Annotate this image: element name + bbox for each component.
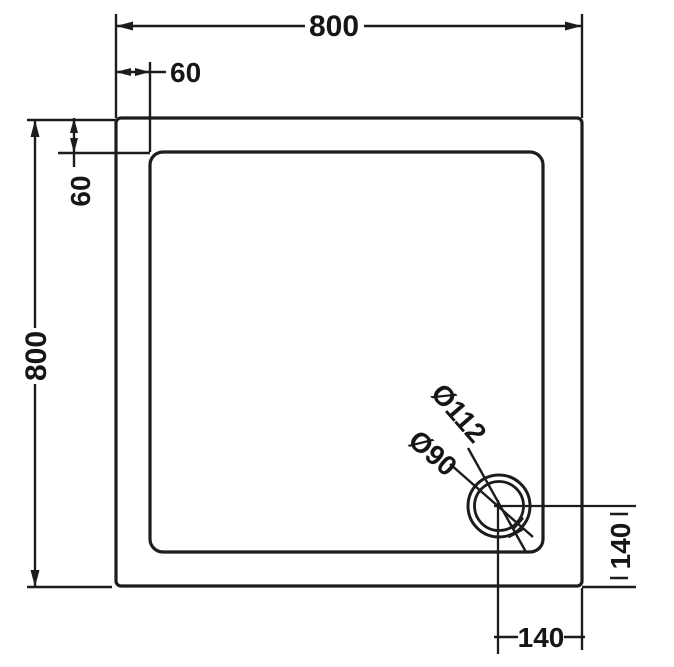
- dim-label-left-height: 800: [20, 331, 53, 381]
- dim-label-waste-offset-right: 140: [605, 523, 636, 570]
- arrow-right-icon: [135, 68, 150, 76]
- tray-inner-rim: [150, 152, 543, 552]
- arrow-right-icon: [565, 22, 582, 31]
- dim-label-top-inset: 60: [170, 57, 201, 88]
- dim-label-waste-inner-diameter: Ø90: [403, 424, 463, 482]
- arrow-down-icon: [31, 570, 40, 587]
- dim-label-waste-offset-bottom: 140: [518, 622, 565, 653]
- arrow-up-icon: [31, 120, 40, 137]
- tray-outer-edge: [116, 118, 582, 586]
- arrow-down-icon: [70, 138, 78, 153]
- dim-label-top-width: 800: [309, 10, 359, 43]
- drawing-canvas: 800 60 800 60 140 140: [0, 0, 674, 667]
- arrow-left-icon: [116, 68, 131, 76]
- arrow-left-icon: [116, 22, 133, 31]
- shower-tray-technical-drawing: 800 60 800 60 140 140: [0, 0, 674, 667]
- dim-label-left-inset: 60: [65, 175, 96, 206]
